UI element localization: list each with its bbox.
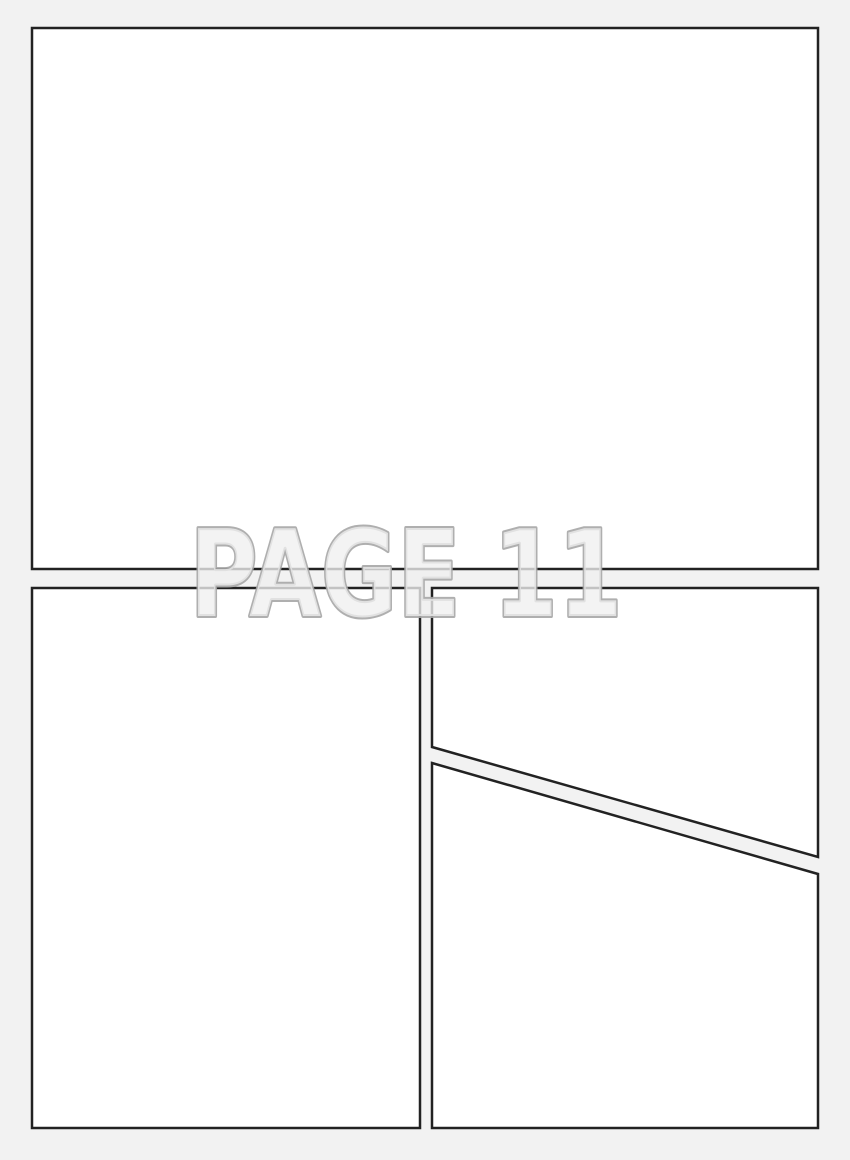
panel-bottom-left-frame [32, 588, 420, 1128]
comic-page-template: PAGE 11 [0, 0, 850, 1160]
page-canvas-svg: PAGE 11 [0, 0, 850, 1160]
page-number-watermark: PAGE 11 [190, 506, 623, 645]
panel-top-frame [32, 28, 818, 569]
